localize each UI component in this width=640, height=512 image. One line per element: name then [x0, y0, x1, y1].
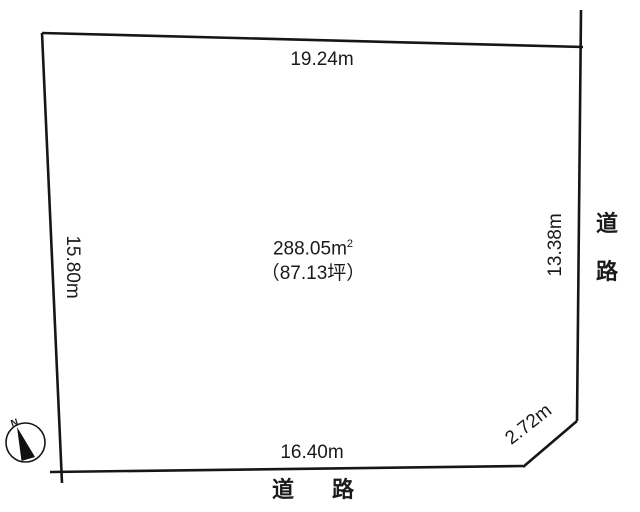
area-text-block: 288.05m2 （87.13坪）	[233, 232, 393, 287]
road-right-char-1: 道	[596, 212, 618, 236]
area-value: 288.05	[273, 238, 331, 259]
road-bottom-char-1: 道	[272, 478, 294, 502]
land-plot-diagram: 19.24m 15.80m 13.38m 2.72m 16.40m 288.05…	[0, 0, 640, 512]
dimension-left: 15.80m	[61, 215, 83, 319]
road-bottom-char-2: 路	[332, 478, 354, 502]
boundary-top-line	[42, 33, 583, 47]
road-label-bottom: 道 路	[272, 478, 354, 502]
area-tsubo: （87.13坪）	[233, 261, 393, 287]
area-square-meters: 288.05m2	[233, 232, 393, 261]
compass-needle-icon	[17, 427, 35, 461]
area-unit: m	[331, 238, 347, 259]
boundary-bottom-line	[50, 466, 523, 472]
road-right-char-2: 路	[596, 260, 618, 284]
area-unit-sup: 2	[347, 238, 353, 250]
dimension-top: 19.24m	[270, 49, 374, 71]
dimension-right: 13.38m	[545, 193, 567, 297]
dimension-bottom: 16.40m	[260, 442, 364, 464]
road-label-right: 道 路	[592, 212, 622, 284]
boundary-left-line	[42, 33, 62, 483]
boundary-right-line	[577, 10, 581, 421]
